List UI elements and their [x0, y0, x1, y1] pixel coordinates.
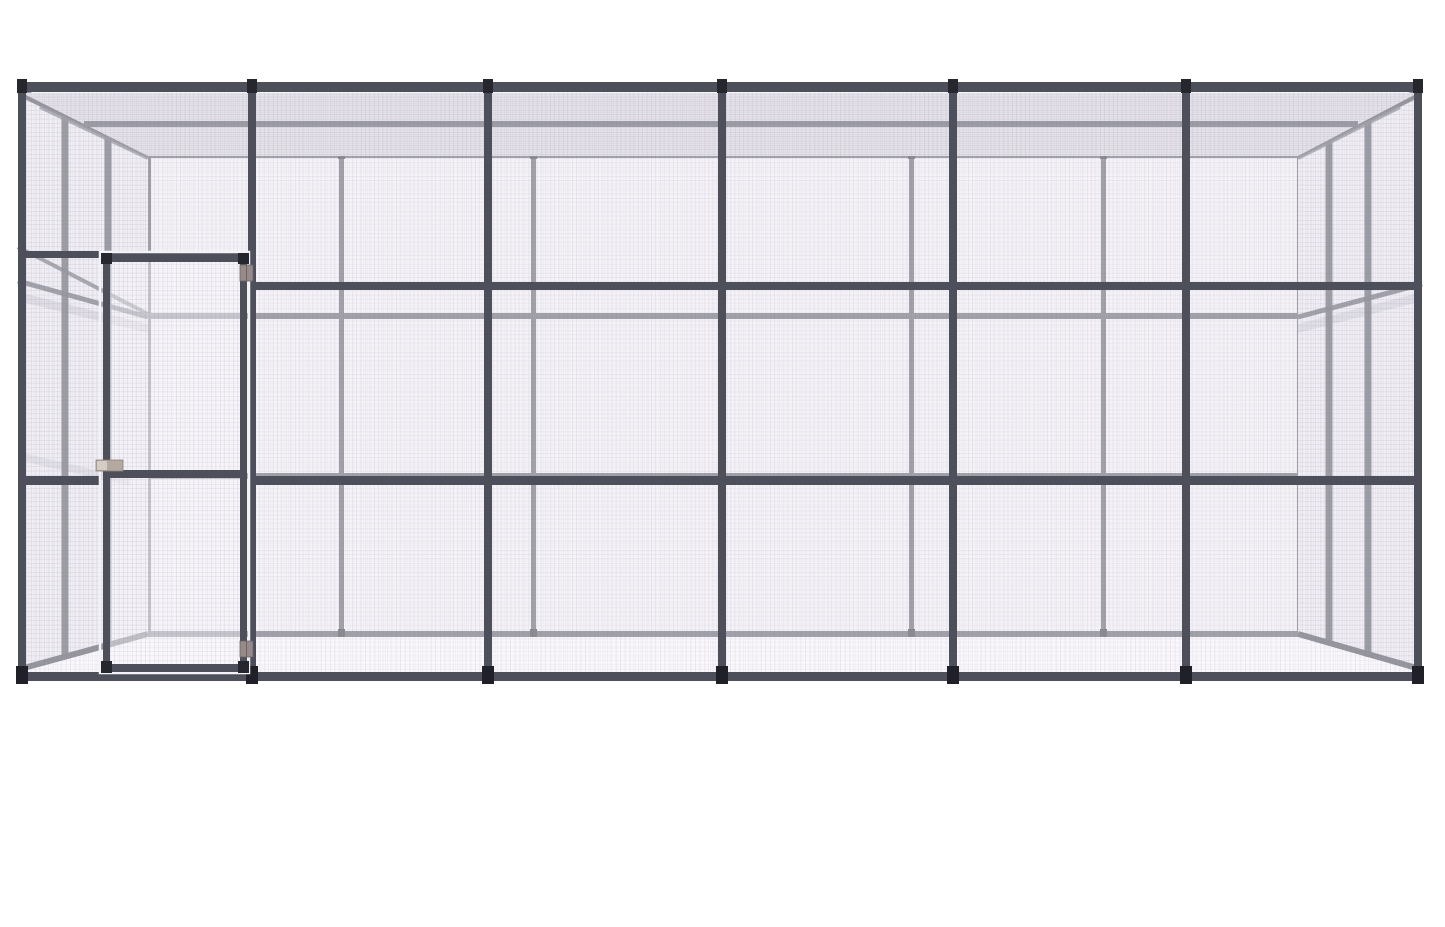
post-cap: [948, 79, 958, 93]
post-cap: [1413, 79, 1423, 93]
post-cap: [483, 79, 493, 93]
front-post: [484, 82, 492, 681]
front-post: [1414, 82, 1422, 681]
door-top-rail: [103, 255, 247, 262]
post-foot: [1180, 666, 1192, 684]
post-foot: [947, 666, 959, 684]
post-cap: [717, 79, 727, 93]
front-post: [718, 82, 726, 681]
door-corner-cap: [101, 661, 112, 673]
door-mid-rail: [103, 470, 247, 478]
front-post: [949, 82, 957, 681]
post-cap: [1181, 79, 1191, 93]
post-foot: [482, 666, 494, 684]
door-stile-right: [240, 255, 247, 672]
door-bottom-rail: [103, 664, 247, 672]
post-cap: [17, 79, 27, 93]
door-latch-face: [97, 461, 107, 470]
post-foot: [16, 666, 28, 684]
door-corner-cap: [101, 253, 112, 264]
post-cap: [247, 79, 257, 93]
post-foot: [716, 666, 728, 684]
door-corner-cap: [238, 253, 249, 264]
front-mid-rail: [249, 476, 1422, 485]
front-mid-rail-left: [18, 476, 100, 485]
door-corner-cap: [238, 661, 249, 673]
front-post: [18, 82, 26, 681]
front-post: [1182, 82, 1190, 681]
door-mesh: [106, 258, 244, 668]
cage-render: [0, 0, 1445, 927]
front-upper-rail: [248, 282, 1422, 290]
product-render-stage: [0, 0, 1445, 927]
post-foot: [1412, 666, 1424, 684]
